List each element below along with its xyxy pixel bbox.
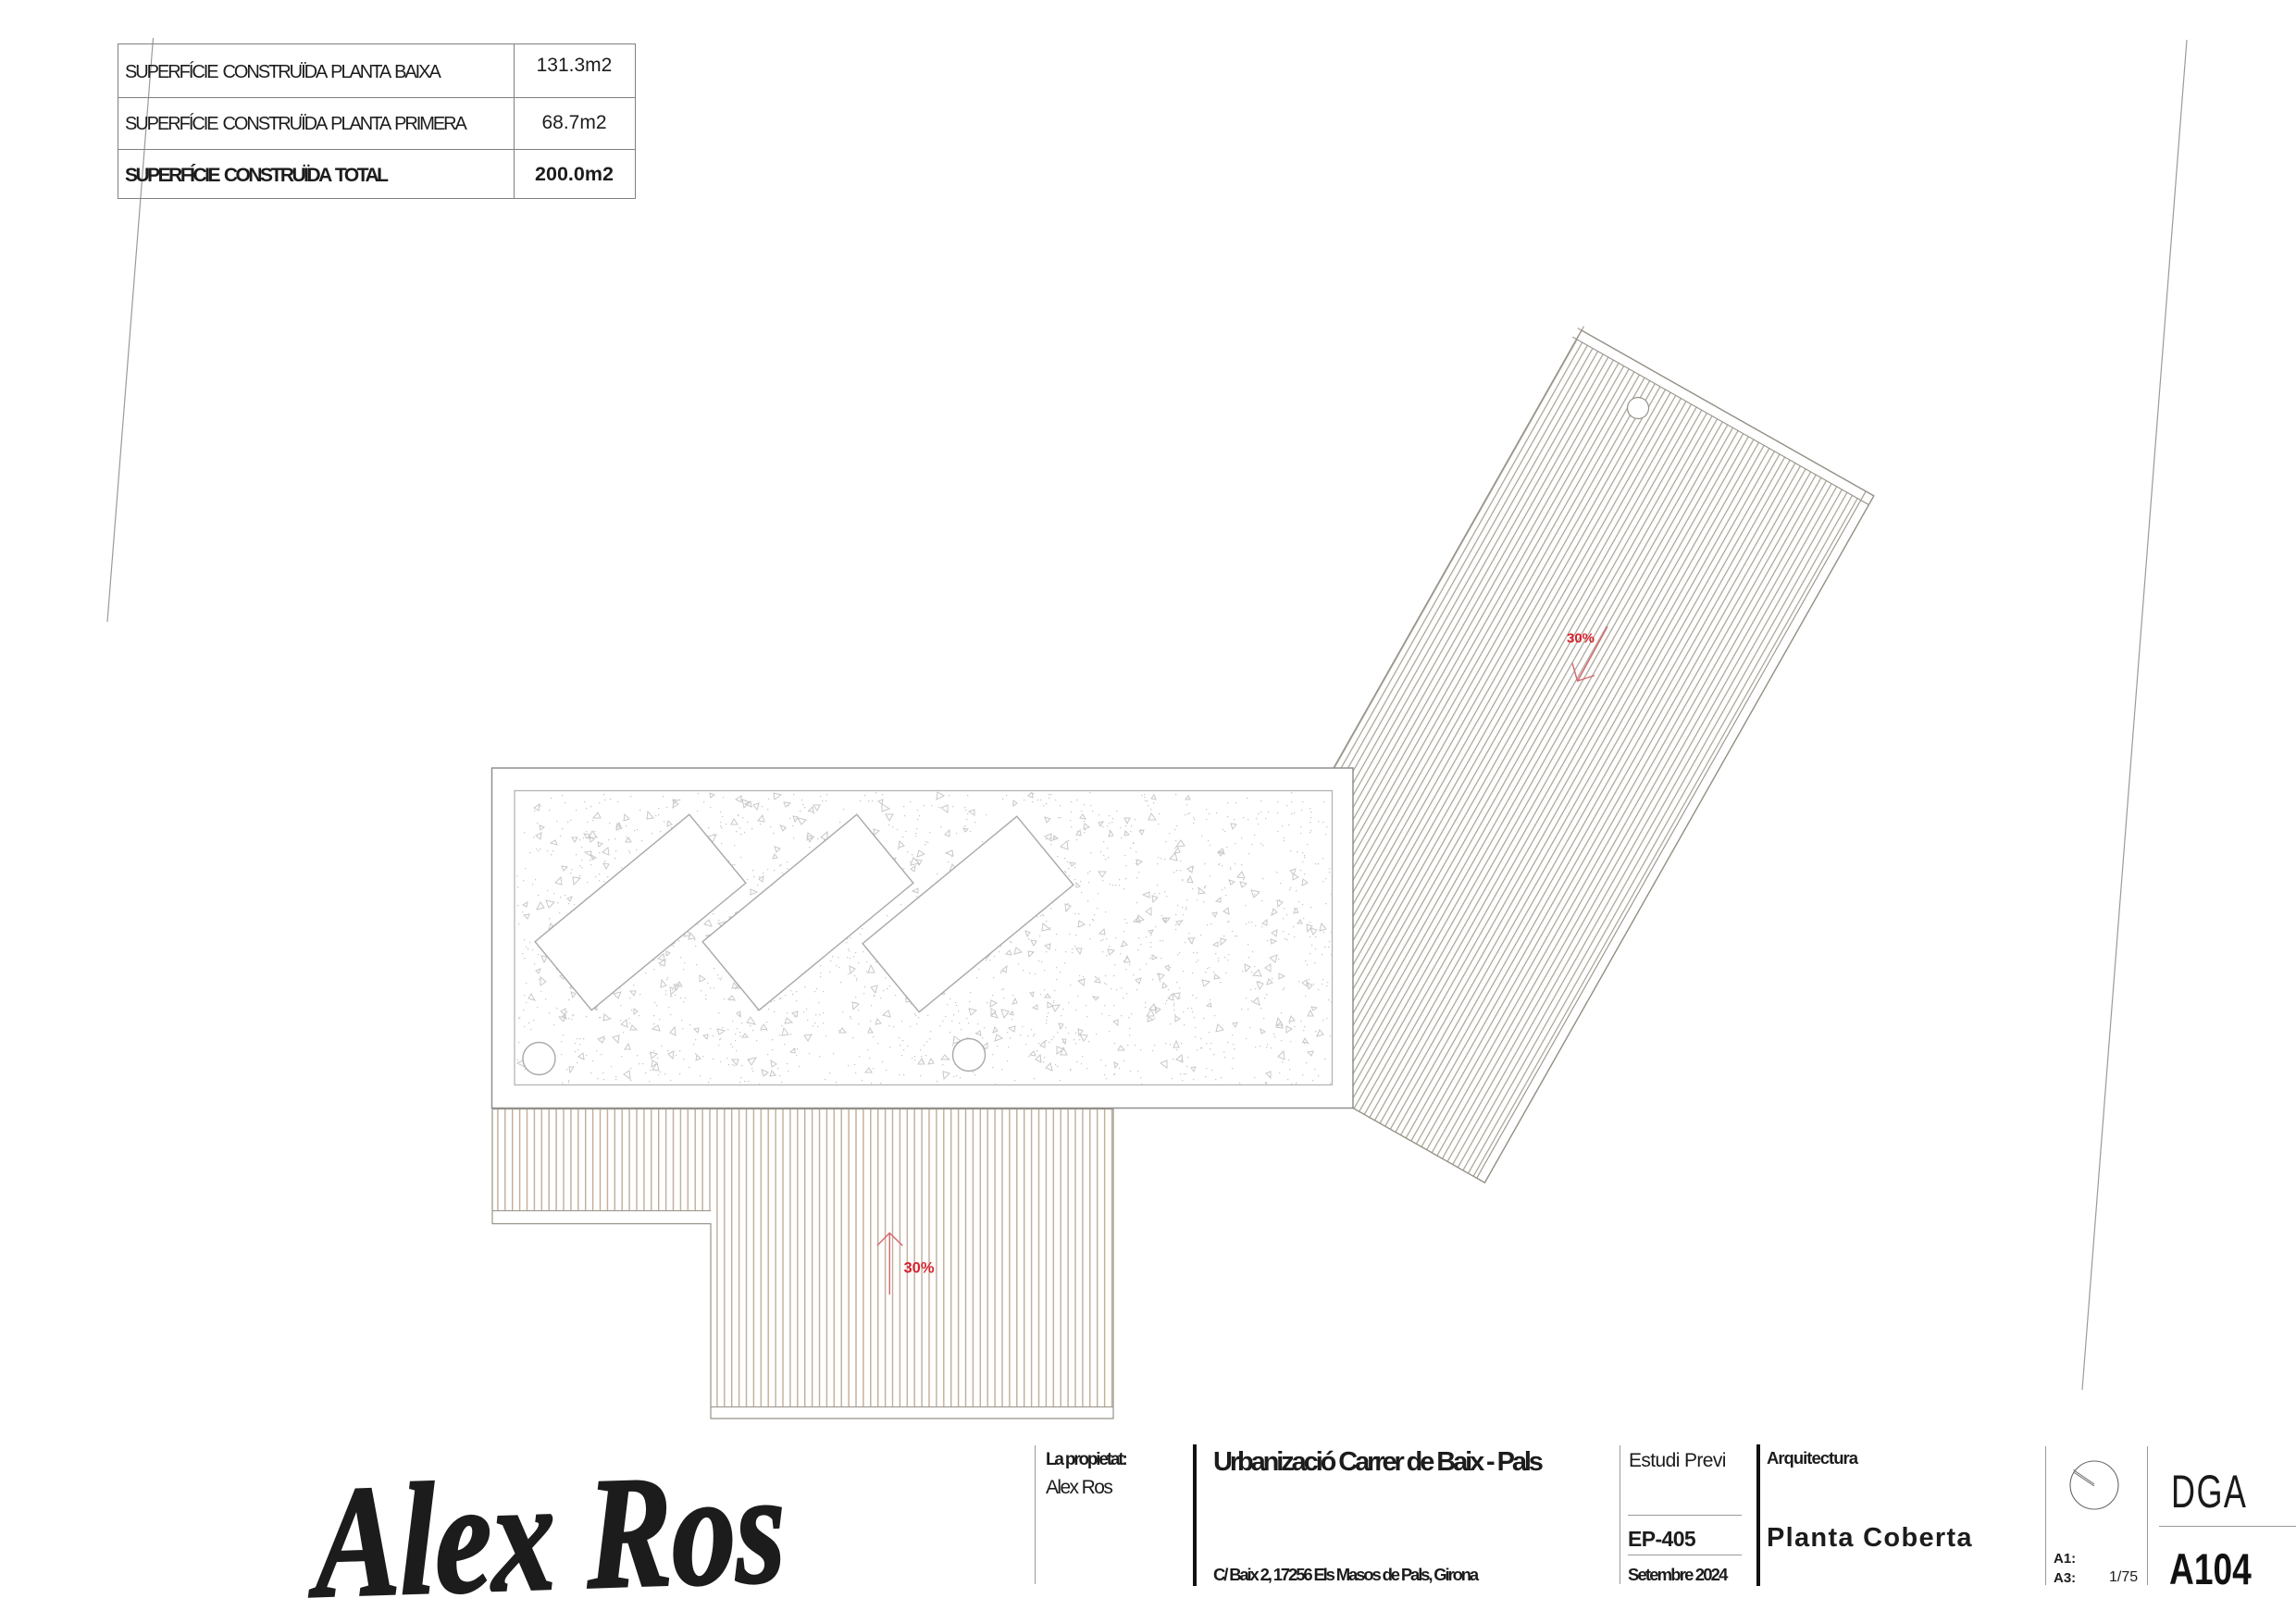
svg-text:30%: 30%	[904, 1260, 935, 1277]
svg-text:30%: 30%	[1567, 631, 1595, 647]
